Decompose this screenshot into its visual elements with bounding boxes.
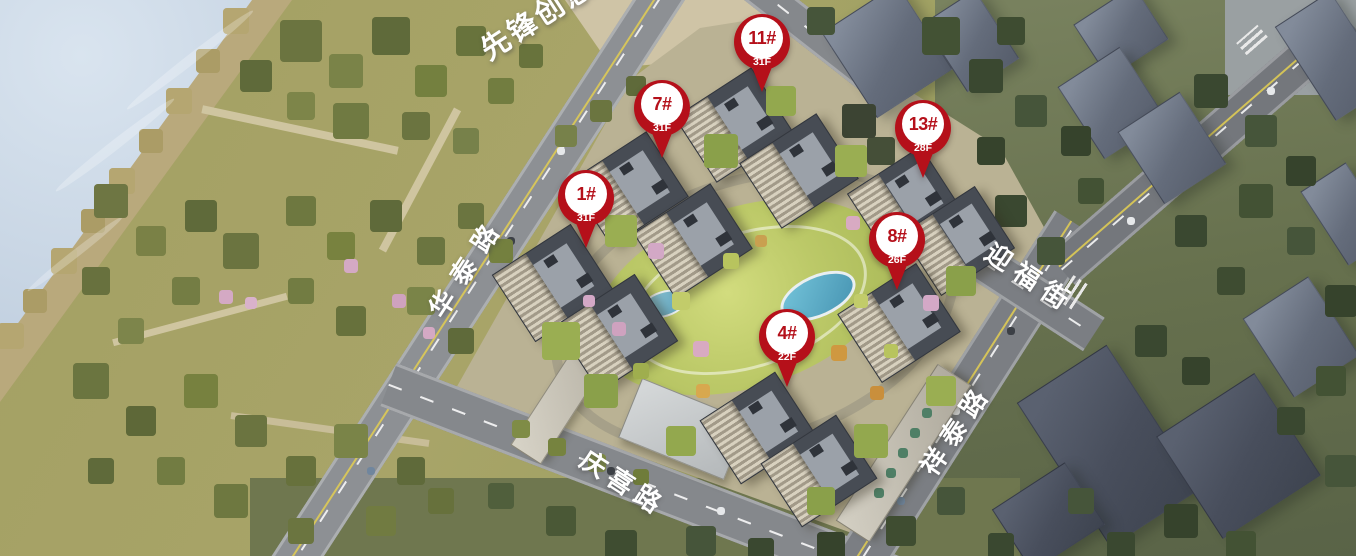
park-path (201, 105, 398, 154)
road-label-xianfeng: 先锋创意 (471, 0, 601, 68)
marker-floors: 26F (869, 254, 925, 266)
marker-number: 11# (741, 17, 783, 59)
garden-trees (0, 0, 2, 2)
building-marker-8[interactable]: 8# 26F (869, 212, 925, 292)
building-marker-13[interactable]: 13# 28F (895, 100, 951, 180)
marker-number: 4# (766, 312, 808, 354)
marker-floors: 31F (558, 212, 614, 224)
marker-floors: 31F (734, 56, 790, 68)
park-path (379, 107, 461, 252)
marker-number: 1# (565, 173, 607, 215)
building-marker-1[interactable]: 1# 31F (558, 170, 614, 250)
marker-floors: 31F (634, 122, 690, 134)
building-marker-11[interactable]: 11# 31F (734, 14, 790, 94)
site-plan-aerial-view: 华泰路 庆喜路 祥泰路 迎福街 先锋创意 1# 31F 4# 22F 7# 31… (0, 0, 1356, 556)
building-marker-4[interactable]: 4# 22F (759, 309, 815, 389)
building-marker-7[interactable]: 7# 31F (634, 80, 690, 160)
marker-number: 7# (641, 83, 683, 125)
marker-floors: 22F (759, 351, 815, 363)
park-path (112, 293, 288, 346)
marker-floors: 28F (895, 142, 951, 154)
marker-number: 8# (876, 215, 918, 257)
marker-number: 13# (902, 103, 944, 145)
